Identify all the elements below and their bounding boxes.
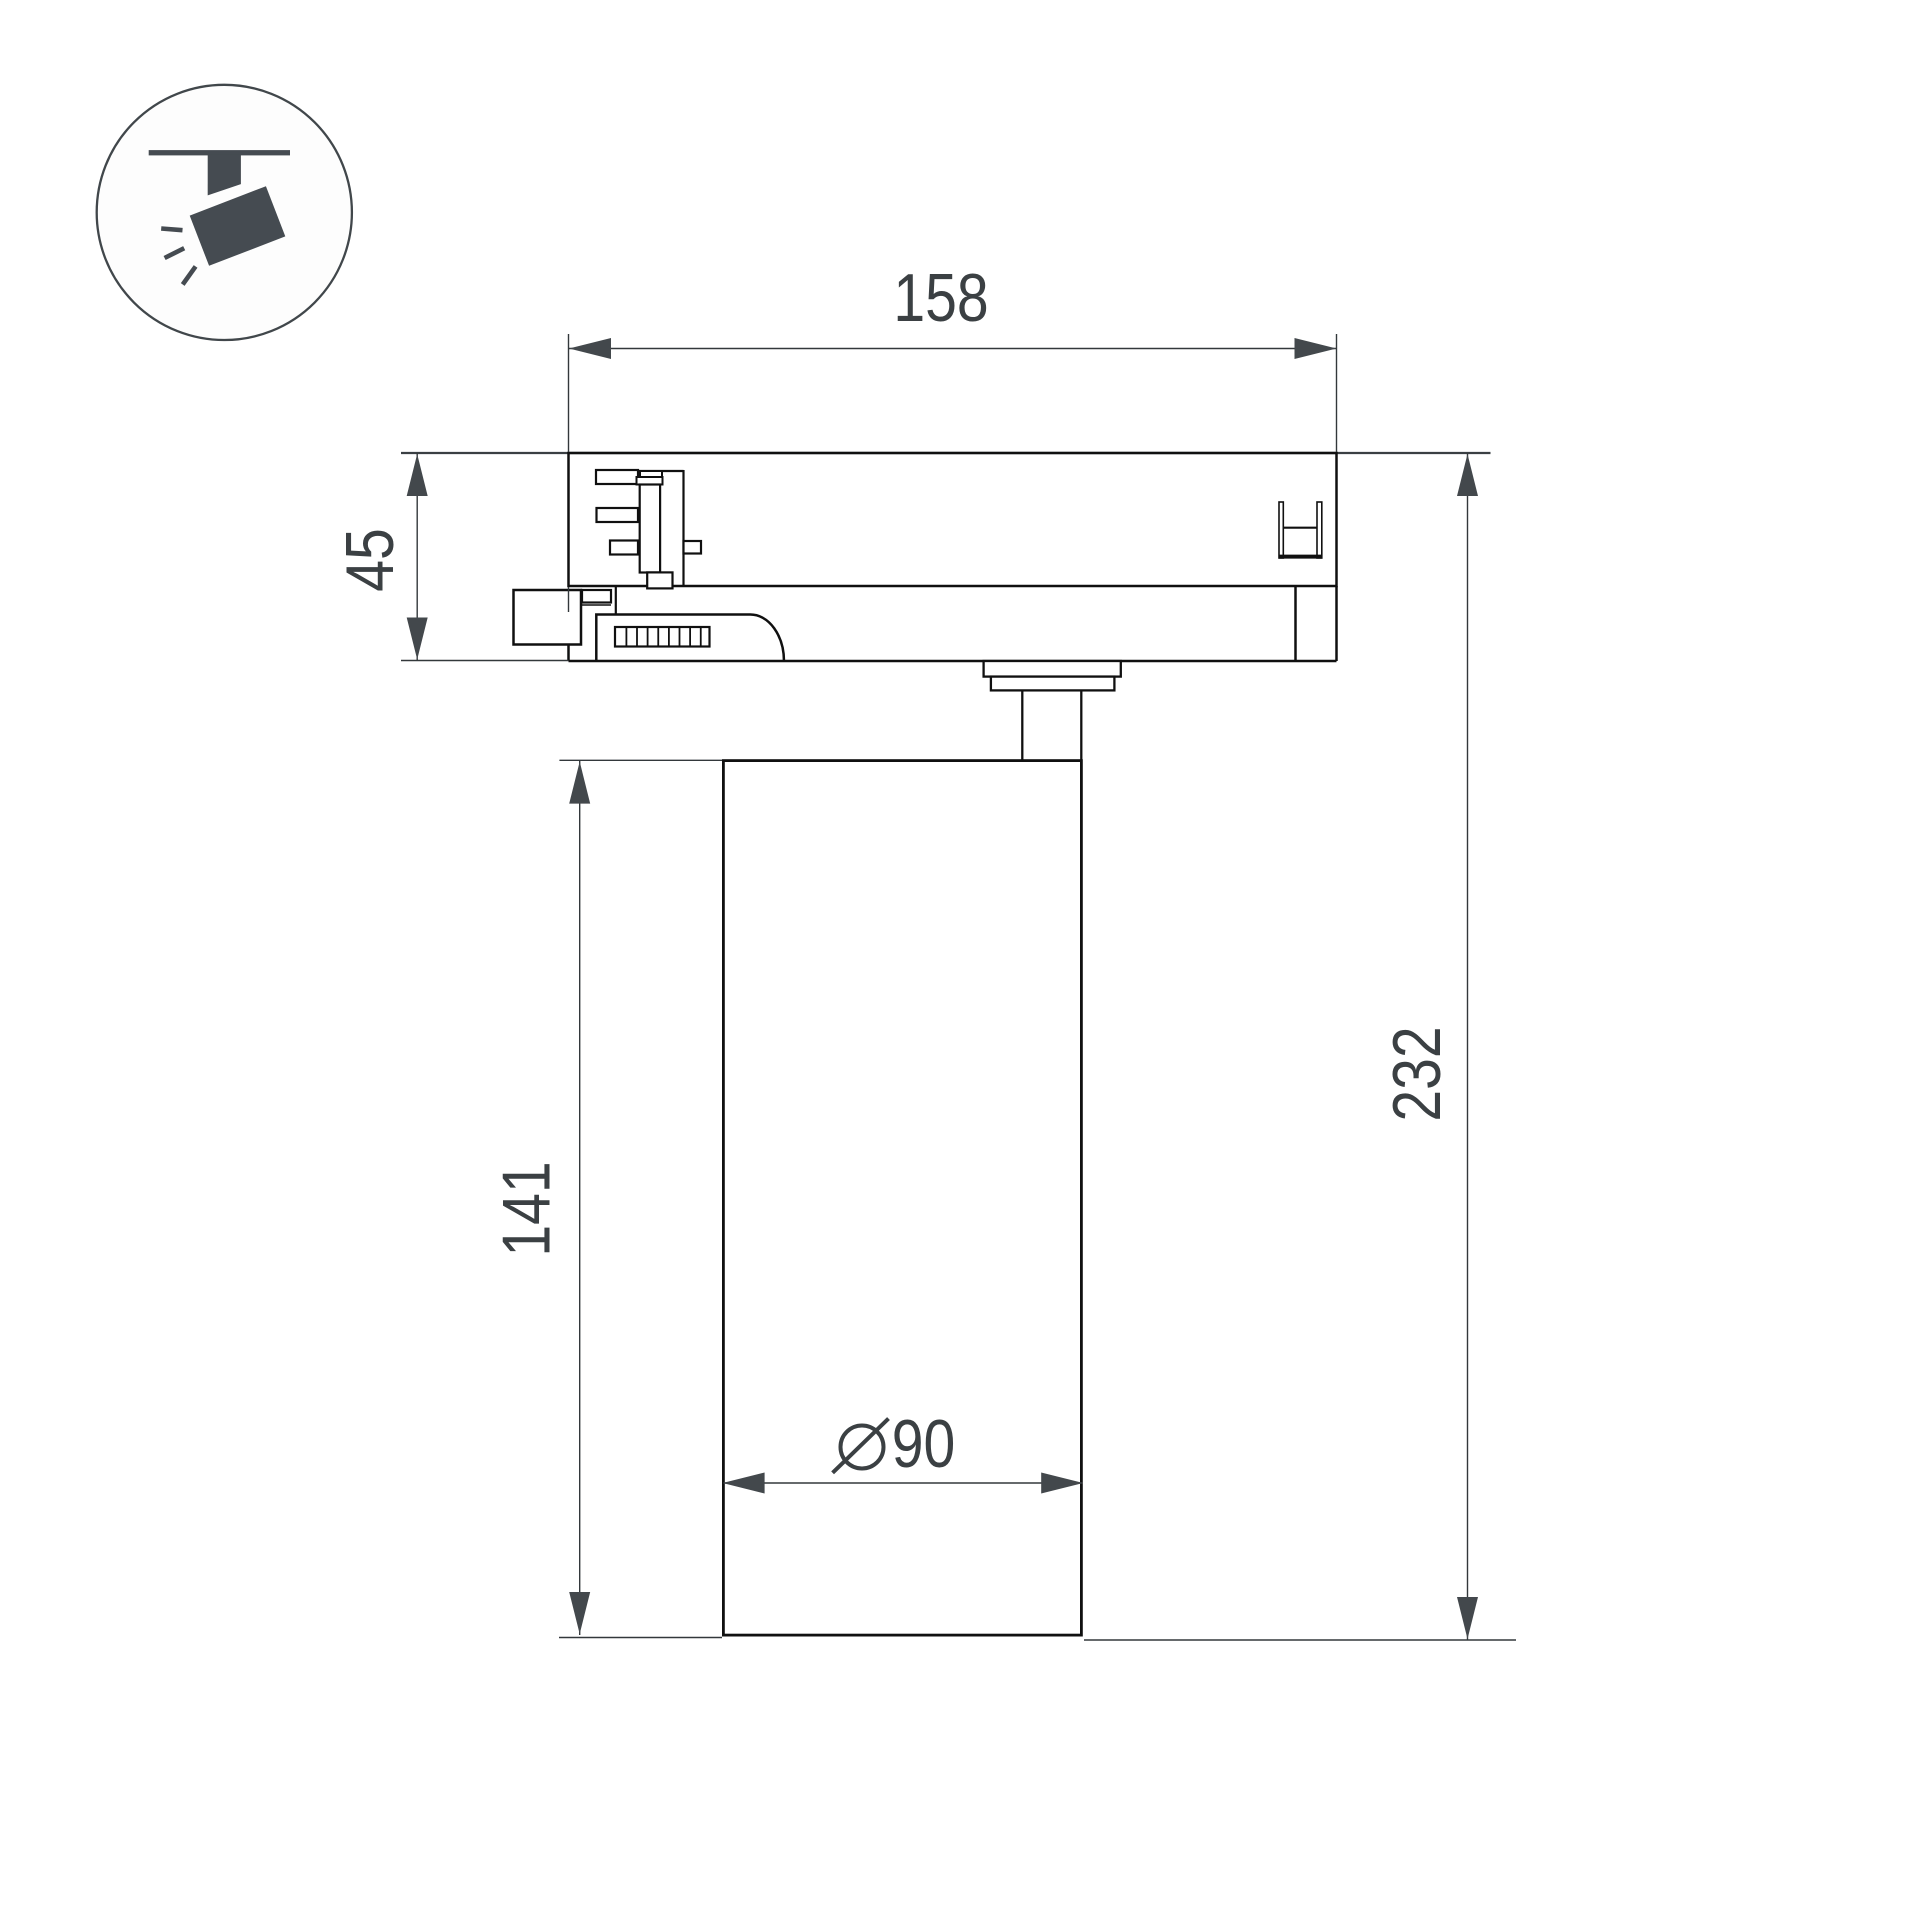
svg-text:141: 141 <box>489 1161 565 1256</box>
svg-text:232: 232 <box>1380 1026 1456 1121</box>
svg-text:90: 90 <box>892 1406 956 1482</box>
svg-text:158: 158 <box>893 260 988 336</box>
svg-text:45: 45 <box>332 528 408 592</box>
